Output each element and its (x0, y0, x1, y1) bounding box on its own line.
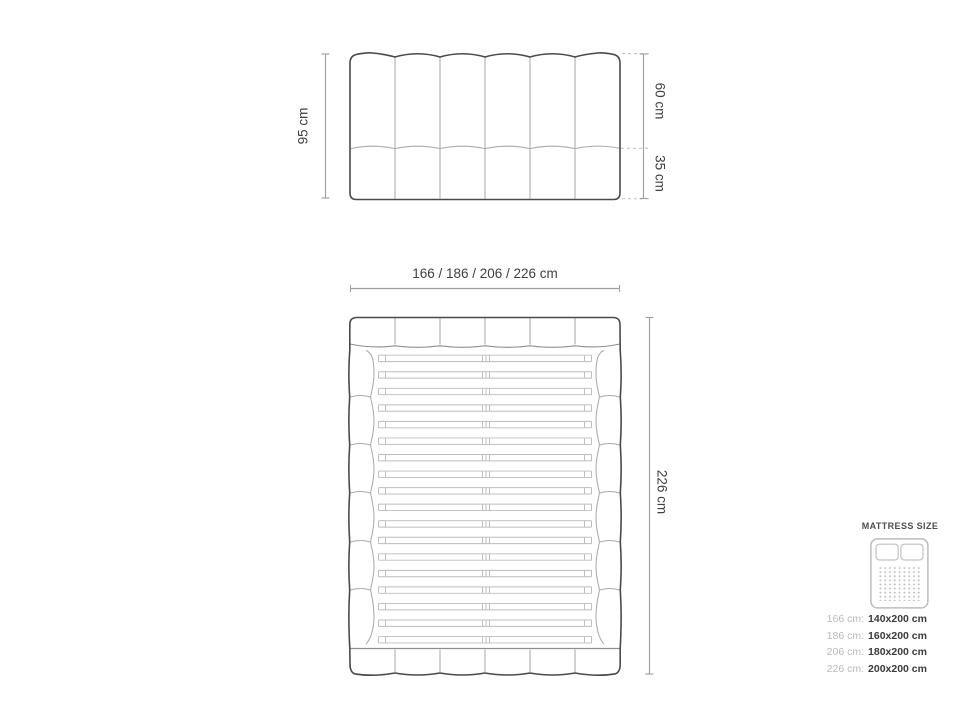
slat (379, 355, 592, 361)
right-rail-divider (600, 492, 620, 494)
mattress-size-row: 226 cm:200x200 cm (800, 661, 927, 678)
left-rail-divider (351, 541, 371, 543)
mattress-size-row: 206 cm:180x200 cm (800, 644, 927, 661)
left-rail-divider (351, 492, 371, 494)
slat (379, 570, 592, 576)
slat (379, 603, 592, 609)
headboard-upper-height-label: 60 cm (653, 83, 668, 120)
left-rail-inner-edge (366, 351, 374, 645)
bed-width-label: 166 / 186 / 206 / 226 cm (412, 266, 558, 281)
slat (379, 587, 592, 593)
slat (379, 455, 592, 461)
size-row-label: 166 cm: (827, 613, 864, 625)
plan-footboard-strip (351, 649, 620, 673)
rail-segment-dividers (351, 396, 620, 591)
slat (379, 637, 592, 643)
size-row-value: 140x200 cm (868, 613, 927, 625)
right-rail-divider (600, 396, 620, 398)
left-rail-divider (351, 396, 371, 398)
headboard-channel-dividers (395, 58, 575, 199)
slat (379, 372, 592, 378)
dimension-headboard-height: 95 cm (296, 54, 330, 198)
slat (379, 471, 592, 477)
right-rail-divider (600, 444, 620, 446)
size-row-label: 206 cm: (827, 646, 864, 658)
slat (379, 537, 592, 543)
dimension-bed-length: 226 cm (646, 318, 670, 675)
size-row-value: 200x200 cm (868, 663, 927, 675)
right-rail-inner-edge (596, 351, 604, 645)
mattress-size-row: 166 cm:140x200 cm (800, 611, 927, 628)
bed-length-label: 226 cm (655, 470, 670, 514)
slat (379, 438, 592, 444)
slat (379, 504, 592, 510)
headboard-height-label: 95 cm (296, 108, 311, 145)
slat (379, 554, 592, 560)
right-rail-divider (600, 541, 620, 543)
mattress-size-row: 186 cm:160x200 cm (800, 628, 927, 645)
dimension-headboard-sections: 60 cm 35 cm (621, 54, 668, 199)
headboard-front-view (350, 53, 620, 200)
headboard-lower-height-label: 35 cm (653, 155, 668, 192)
slat (379, 421, 592, 427)
slat (379, 620, 592, 626)
pillow-right-icon (901, 544, 923, 560)
bed-dimensions-diagram: 95 cm 60 cm 35 cm 166 / 186 / 206 / 226 … (0, 0, 970, 728)
right-rail-divider (600, 589, 620, 591)
size-row-value: 160x200 cm (868, 630, 927, 642)
pillow-left-icon (876, 544, 898, 560)
slat-area (379, 355, 592, 643)
bed-plan-outline (349, 318, 621, 676)
left-rail-divider (351, 444, 371, 446)
size-row-label: 226 cm: (827, 663, 864, 675)
size-row-label: 186 cm: (827, 630, 864, 642)
mattress-dots-pattern (878, 566, 921, 601)
mattress-size-title: MATTRESS SIZE (850, 521, 950, 531)
slat (379, 488, 592, 494)
size-row-value: 180x200 cm (868, 646, 927, 658)
slat (379, 521, 592, 527)
slat (379, 405, 592, 411)
slat (379, 388, 592, 394)
left-rail-divider (351, 589, 371, 591)
bed-top-view (349, 318, 621, 676)
dimension-bed-width: 166 / 186 / 206 / 226 cm (351, 266, 620, 292)
mattress-size-table: 166 cm:140x200 cm 186 cm:160x200 cm 206 … (800, 611, 927, 677)
plan-headboard-strip (350, 318, 620, 347)
